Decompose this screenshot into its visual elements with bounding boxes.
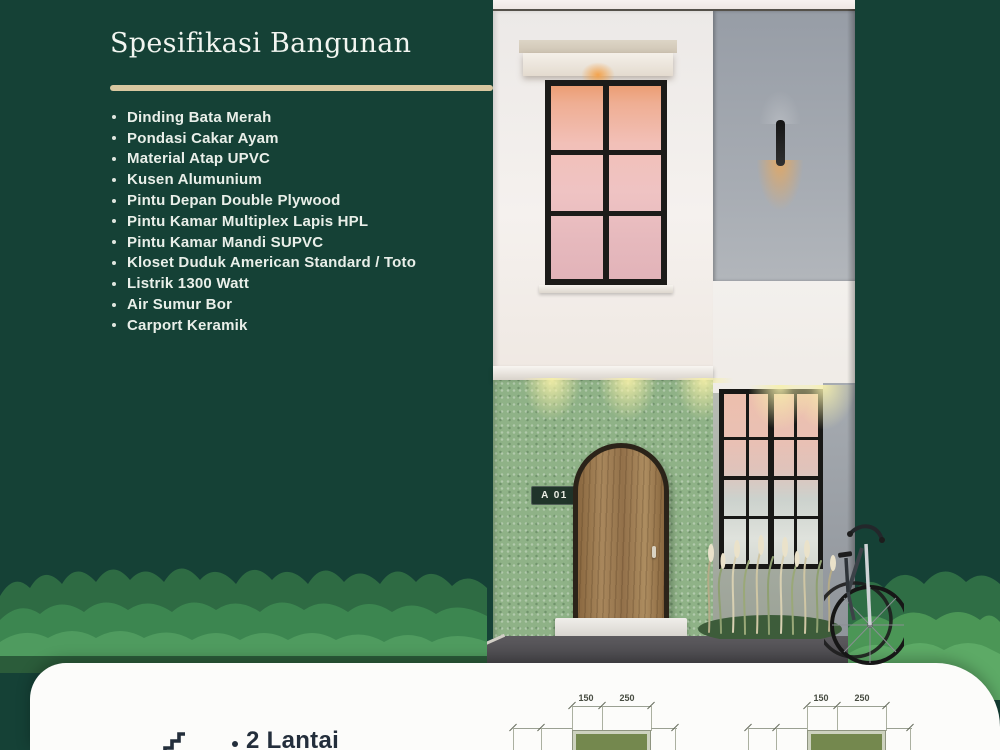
extension-line: [675, 728, 676, 750]
extension-line: [602, 706, 603, 731]
spec-item-label: Carport Keramik: [127, 317, 248, 334]
bullet-icon: [112, 136, 116, 140]
spec-item: Kusen Alumunium: [112, 169, 416, 190]
window-muntin: [551, 150, 661, 155]
extension-line: [910, 728, 911, 750]
page-title: Spesifikasi Bangunan: [110, 28, 411, 59]
feature-label: 2 Lantai: [246, 727, 339, 750]
spec-item: Air Sumur Bor: [112, 294, 416, 315]
bullet-icon: [112, 240, 116, 244]
spec-item: Dinding Bata Merah: [112, 107, 416, 128]
unit-number-plaque: A 01: [531, 486, 578, 505]
extension-line: [541, 728, 542, 750]
spec-item: Kloset Duduk American Standard / Toto: [112, 253, 416, 274]
window-canopy: [523, 40, 673, 82]
bullet-icon: [112, 219, 116, 223]
spec-item: Material Atap UPVC: [112, 149, 416, 170]
spec-item-label: Dinding Bata Merah: [127, 109, 271, 126]
lamp-glow: [759, 90, 801, 124]
plan-lot-area: [807, 730, 886, 750]
bullet-icon: [232, 741, 238, 747]
dimension-label: 250: [847, 693, 877, 703]
dimension-line: [748, 728, 807, 729]
canopy-top: [519, 40, 677, 53]
bullet-icon: [112, 115, 116, 119]
spec-list: Dinding Bata Merah Pondasi Cakar Ayam Ma…: [112, 107, 416, 336]
spec-item: Carport Keramik: [112, 315, 416, 336]
spec-item-label: Air Sumur Bor: [127, 296, 232, 313]
bicycle: [824, 496, 904, 668]
spec-item-label: Pintu Depan Double Plywood: [127, 192, 341, 209]
bullet-icon: [112, 323, 116, 327]
window-muntin: [551, 211, 661, 216]
info-card: 2 Lantai 150 250 150 250: [30, 663, 1000, 750]
bullet-icon: [112, 178, 116, 182]
lamp-glow: [757, 160, 803, 210]
upper-window: [545, 80, 667, 285]
plan-lot-area: [572, 730, 651, 750]
spec-item: Pintu Kamar Multiplex Lapis HPL: [112, 211, 416, 232]
floor-plan-diagram: 150 250: [508, 697, 688, 750]
spec-item-label: Pintu Kamar Mandi SUPVC: [127, 234, 323, 251]
roof-edge: [493, 0, 855, 11]
dimension-line: [572, 706, 651, 707]
floor-plan-diagram: 150 250: [743, 697, 923, 750]
doorstep: [555, 618, 687, 638]
downlight-glow: [599, 378, 657, 420]
mid-facade-white: [713, 281, 855, 393]
wall-lamp: [776, 120, 785, 166]
spec-item: Pintu Depan Double Plywood: [112, 190, 416, 211]
bullet-icon: [112, 261, 116, 265]
ornamental-grasses: [695, 487, 845, 639]
spec-item-label: Listrik 1300 Watt: [127, 275, 249, 292]
extension-line: [748, 728, 749, 750]
extension-line: [807, 706, 808, 731]
extension-line: [837, 706, 838, 731]
downlight-glow: [793, 385, 855, 429]
bullet-icon: [112, 199, 116, 203]
bushes-left: [0, 538, 487, 673]
spec-item-label: Pondasi Cakar Ayam: [127, 130, 279, 147]
extension-line: [572, 706, 573, 731]
spec-item-label: Kloset Duduk American Standard / Toto: [127, 254, 416, 271]
extension-line: [776, 728, 777, 750]
extension-line: [513, 728, 514, 750]
door-handle: [652, 546, 656, 558]
bullet-icon: [112, 303, 116, 307]
spec-item-label: Material Atap UPVC: [127, 150, 270, 167]
downlight-glow: [523, 378, 581, 420]
spec-item-label: Kusen Alumunium: [127, 171, 262, 188]
spec-item: Pondasi Cakar Ayam: [112, 128, 416, 149]
spec-item-label: Pintu Kamar Multiplex Lapis HPL: [127, 213, 368, 230]
window-muntin: [724, 437, 818, 440]
dimension-line: [513, 728, 572, 729]
dimension-line: [807, 706, 886, 707]
ground-floor-wall: A 01: [493, 380, 713, 646]
window-mullion: [603, 86, 609, 279]
arched-front-door: [573, 443, 669, 623]
spec-item: Listrik 1300 Watt: [112, 273, 416, 294]
bullet-icon: [112, 282, 116, 286]
bullet-icon: [112, 157, 116, 161]
dimension-label: 250: [612, 693, 642, 703]
window-muntin: [724, 476, 818, 480]
feature-item: 2 Lantai: [156, 727, 339, 750]
flyer-poster: Spesifikasi Bangunan Dinding Bata Merah …: [0, 0, 1000, 750]
window-sill: [539, 285, 673, 293]
title-underline: [110, 85, 493, 91]
spec-item: Pintu Kamar Mandi SUPVC: [112, 232, 416, 253]
stairs-icon: [156, 731, 186, 750]
